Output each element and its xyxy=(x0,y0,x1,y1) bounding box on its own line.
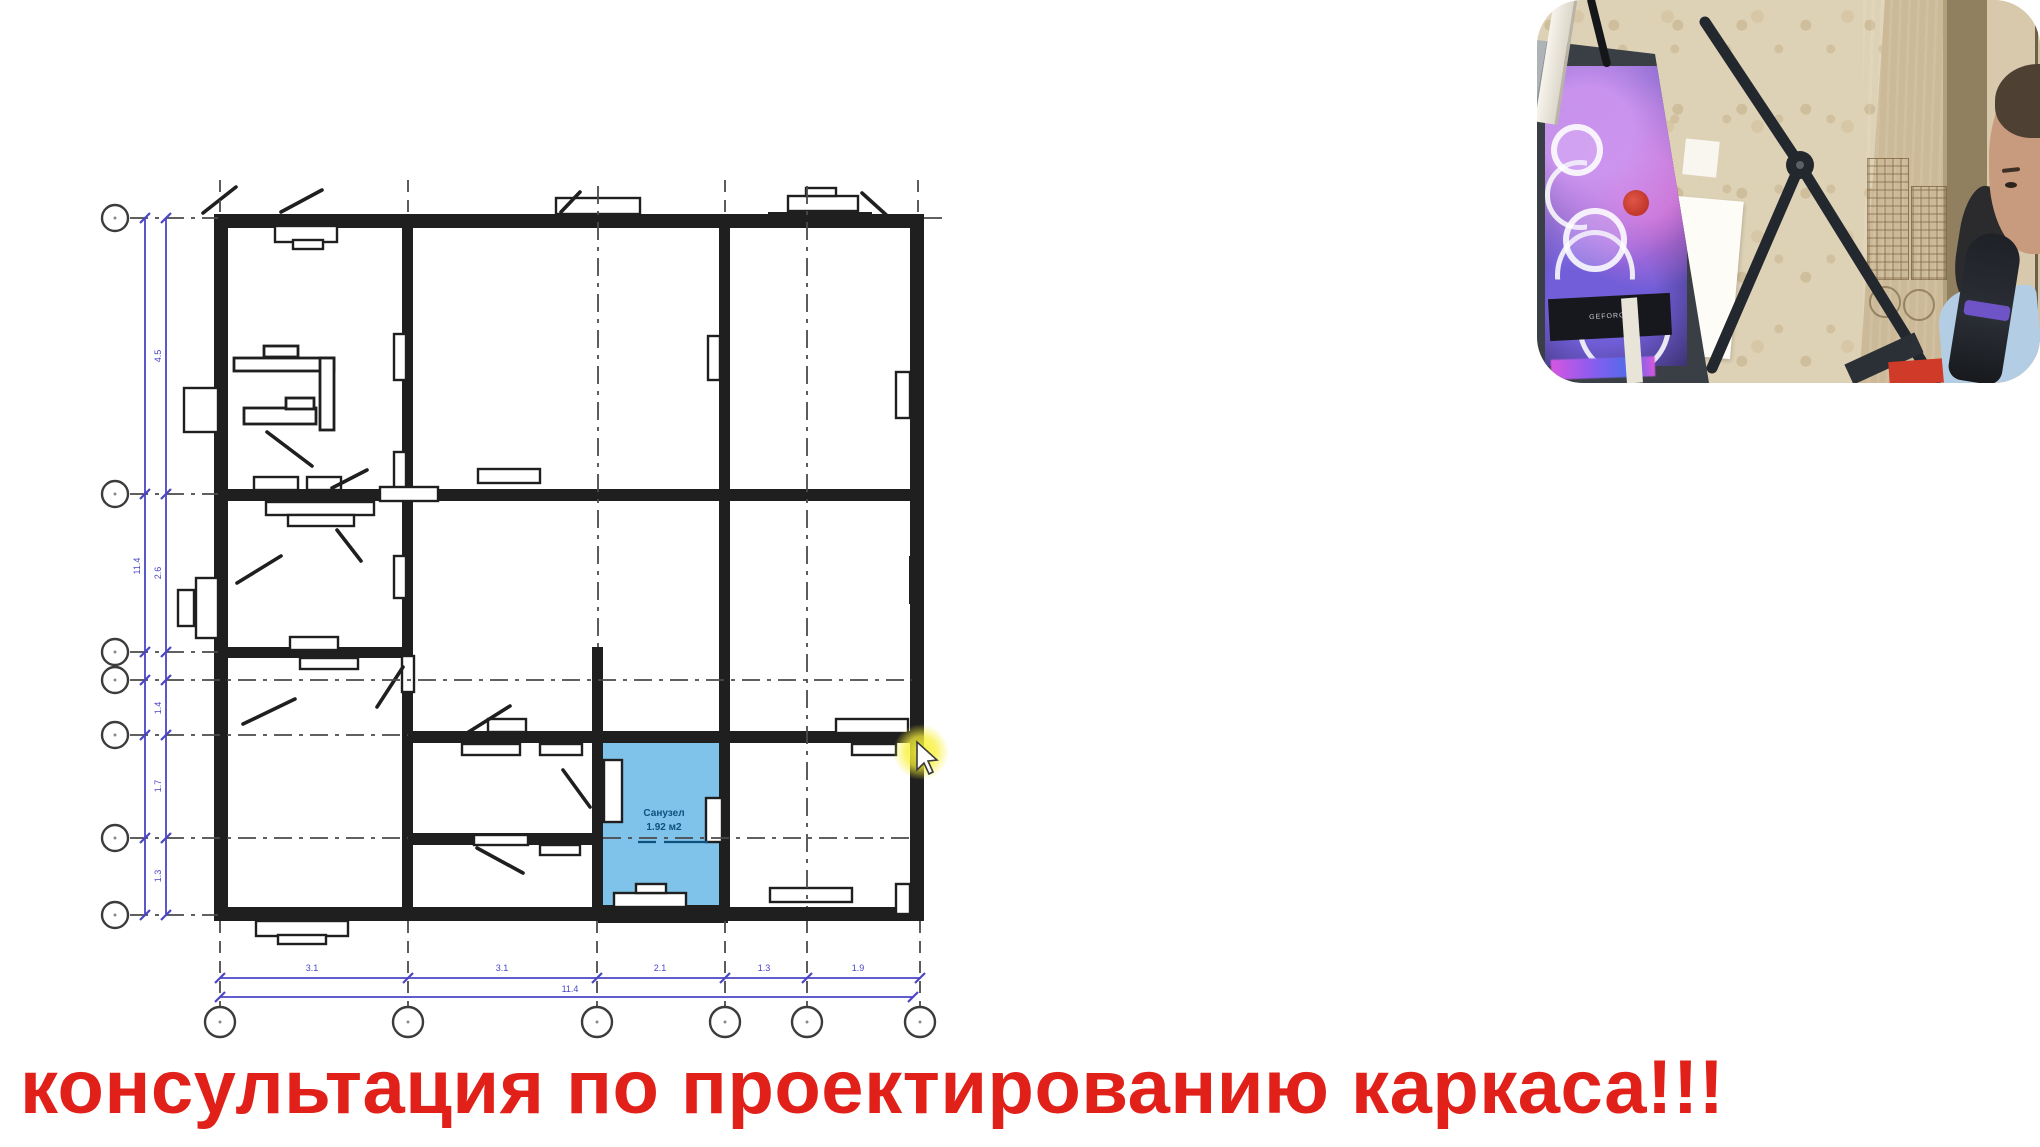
room-label-area: 1.92 м2 xyxy=(646,822,682,833)
window xyxy=(540,744,582,755)
dim-label: 3.1 xyxy=(306,963,319,973)
window-dark-segment xyxy=(909,556,924,604)
window xyxy=(706,798,722,842)
dim-label: 2.1 xyxy=(654,963,667,973)
wall-interior xyxy=(408,731,910,743)
window xyxy=(614,893,686,907)
window xyxy=(266,502,374,515)
window xyxy=(178,590,194,626)
axis-bubble-mark xyxy=(114,734,117,737)
mic-arm xyxy=(1712,165,1800,368)
video-frame: 11.44.52.61.41.71.33.13.12.11.31.911.4Са… xyxy=(0,0,2040,1147)
wall-bottom xyxy=(218,907,924,921)
window xyxy=(290,637,338,650)
wall-left xyxy=(214,214,228,921)
window xyxy=(478,469,540,483)
window xyxy=(540,845,580,855)
axis-bubble-mark xyxy=(114,493,117,496)
door-swing xyxy=(563,770,590,807)
door-swing xyxy=(377,667,403,707)
axis-bubble-mark xyxy=(596,1021,599,1024)
banner-text: консультация по проектированию каркаса!!… xyxy=(20,1044,1724,1131)
arm-pivot-screw xyxy=(1796,161,1804,169)
window xyxy=(708,336,720,380)
axis-bubble-mark xyxy=(114,837,117,840)
dim-label: 3.1 xyxy=(496,963,509,973)
door-swing xyxy=(237,556,281,583)
axis-bubble-mark xyxy=(919,1021,922,1024)
window xyxy=(380,487,438,501)
door-swing xyxy=(267,432,312,466)
door-swing xyxy=(243,699,295,724)
window xyxy=(196,578,218,638)
red-object-on-desk xyxy=(1888,358,1950,383)
window xyxy=(394,452,406,488)
window xyxy=(806,188,836,196)
window xyxy=(896,372,910,418)
dim-label: 2.6 xyxy=(153,567,163,580)
dim-label: 11.4 xyxy=(132,558,142,575)
lamp-pole xyxy=(1629,298,1635,383)
window xyxy=(788,196,858,211)
window-dark-segment xyxy=(768,212,872,228)
dim-label: 1.4 xyxy=(153,702,163,715)
furniture xyxy=(286,398,314,409)
window xyxy=(307,477,341,490)
window xyxy=(462,744,520,755)
window xyxy=(488,719,526,732)
dim-label: 4.5 xyxy=(153,350,163,363)
door-swing xyxy=(281,190,322,212)
dim-label: 1.3 xyxy=(153,870,163,883)
window xyxy=(836,719,908,733)
dim-label: 1.3 xyxy=(758,963,771,973)
window xyxy=(852,744,896,755)
axis-bubble-mark xyxy=(407,1021,410,1024)
axis-bubble-mark xyxy=(724,1021,727,1024)
window xyxy=(278,935,326,944)
room-label-name: Санузел xyxy=(643,808,684,819)
axis-bubble-mark xyxy=(114,679,117,682)
window xyxy=(293,240,323,249)
window xyxy=(256,921,348,936)
window xyxy=(254,477,298,490)
axis-bubble-mark xyxy=(114,651,117,654)
window xyxy=(394,556,406,598)
streamer-eye xyxy=(2005,182,2017,188)
axis-bubble-mark xyxy=(114,914,117,917)
axis-bubble-mark xyxy=(806,1021,809,1024)
dim-label: 1.9 xyxy=(852,963,865,973)
window xyxy=(300,658,358,669)
window xyxy=(896,884,910,914)
webcam-overlay: GEFORCE xyxy=(1537,0,2040,383)
window xyxy=(474,835,528,845)
window xyxy=(184,388,218,432)
window xyxy=(402,656,414,692)
door-swing xyxy=(477,848,523,873)
dim-label: 11.4 xyxy=(562,984,579,994)
axis-bubble-mark xyxy=(114,217,117,220)
window xyxy=(288,515,354,526)
furniture xyxy=(320,358,334,430)
axis-bubble-mark xyxy=(219,1021,222,1024)
furniture xyxy=(264,346,298,357)
door-swing xyxy=(337,530,361,561)
wall-interior xyxy=(592,647,603,915)
dim-label: 1.7 xyxy=(153,780,163,793)
window xyxy=(604,760,622,822)
mic-arm xyxy=(1705,22,1800,165)
window xyxy=(636,884,666,893)
window xyxy=(770,888,852,902)
window xyxy=(394,334,406,380)
